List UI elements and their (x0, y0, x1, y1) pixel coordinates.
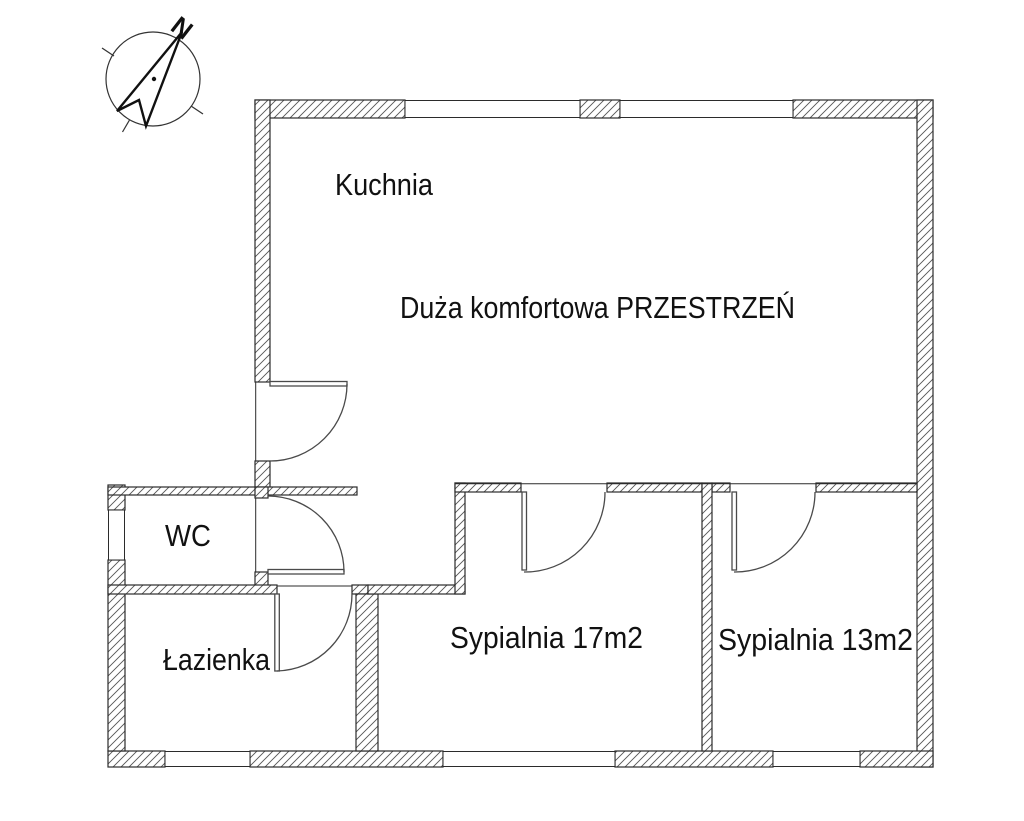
wall-segment (108, 585, 277, 594)
wall-segment (860, 751, 933, 767)
window (165, 752, 250, 767)
door-arc (268, 496, 344, 572)
window (443, 752, 615, 767)
bedroom-large-door (522, 492, 605, 572)
compass-needle (117, 32, 182, 126)
wall-segment (255, 461, 270, 488)
wall-segment (455, 483, 521, 492)
window (405, 101, 580, 118)
door-leaf (275, 594, 280, 671)
wall-segment (816, 483, 917, 492)
door-leaf (270, 382, 347, 387)
door-arc (734, 492, 815, 572)
room-label-bedroom-small: Sypialnia 13m2 (718, 622, 913, 657)
compass-tick (191, 106, 203, 114)
wall-segment (108, 751, 165, 767)
wall-segment (255, 487, 268, 498)
floor-plan-page: N Kuchnia Duża komfortowa PRZESTRZEŃ WC … (0, 0, 1024, 821)
wall-segment (352, 585, 368, 594)
wall-segment (255, 100, 270, 382)
wall-segment (615, 751, 773, 767)
wall-segment (712, 483, 730, 492)
window (109, 510, 125, 560)
bedroom-small-door (732, 492, 815, 572)
room-label-bathroom: Łazienka (163, 642, 271, 677)
wall-segment (455, 483, 465, 594)
window (773, 752, 860, 767)
wall-segment (793, 100, 933, 118)
compass-tick (102, 48, 114, 56)
compass-center-dot (152, 77, 156, 81)
room-label-bedroom-large: Sypialnia 17m2 (450, 620, 643, 655)
compass-north-icon: N (102, 10, 203, 132)
door-arc (524, 492, 605, 572)
door-arc (270, 384, 347, 461)
wall-segment (917, 100, 933, 767)
wall-segment (255, 100, 405, 118)
north-letter: N (165, 10, 198, 45)
wall-segment (607, 483, 702, 492)
wall-segment (356, 594, 378, 751)
wall-segment (108, 487, 357, 495)
room-label-wc: WC (165, 518, 211, 553)
door-arc (277, 594, 352, 671)
wall-segment (702, 483, 712, 751)
room-label-living-space: Duża komfortowa PRZESTRZEŃ (400, 290, 795, 325)
compass-tick (123, 120, 130, 132)
wall-segment (580, 100, 620, 118)
room-label-kitchen: Kuchnia (335, 167, 434, 202)
door-leaf (732, 492, 737, 570)
bathroom-door (275, 594, 352, 671)
entrance-door (270, 382, 347, 462)
wc-door (268, 496, 344, 574)
door-leaf (268, 570, 344, 575)
door-leaf (522, 492, 527, 570)
opening-face-lines (256, 382, 917, 586)
window (620, 101, 793, 118)
wall-segment (368, 585, 465, 594)
wall-segment (250, 751, 443, 767)
floor-plan: N Kuchnia Duża komfortowa PRZESTRZEŃ WC … (0, 0, 1024, 821)
